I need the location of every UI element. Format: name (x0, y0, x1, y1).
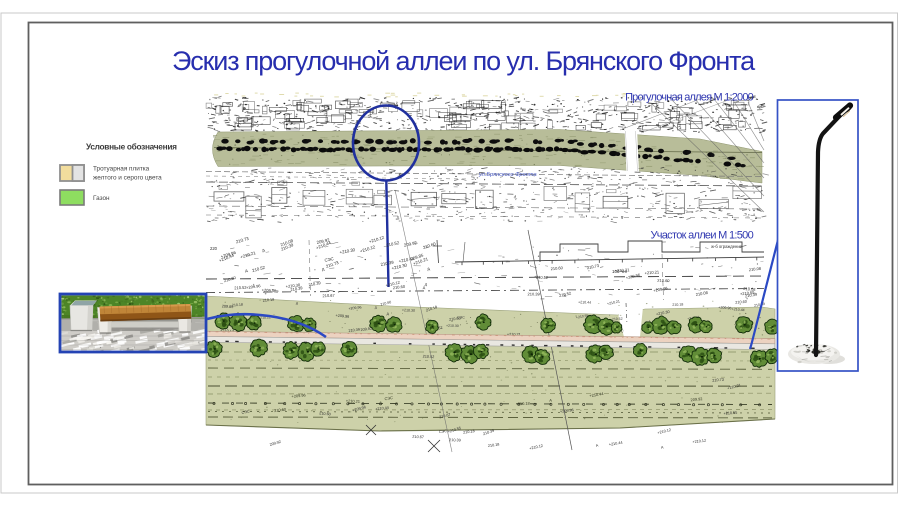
svg-text:желтого и серого цвета: желтого и серого цвета (93, 175, 162, 182)
svg-text:А: А (564, 293, 567, 298)
svg-text:210.60: 210.60 (657, 278, 670, 283)
svg-text:+210.30: +210.30 (446, 324, 459, 328)
svg-text:Условные обозначения: Условные обозначения (86, 142, 177, 152)
svg-text:Участок аллеи М 1:500: Участок аллеи М 1:500 (650, 230, 753, 242)
svg-text:+210.30: +210.30 (402, 308, 415, 313)
svg-text:+209.96: +209.96 (718, 306, 731, 311)
svg-text:210.52: 210.52 (612, 317, 623, 322)
svg-text:210.39: 210.39 (527, 292, 540, 297)
svg-text:220: 220 (210, 246, 218, 251)
svg-text:Прогулочная аллея М 1:2000: Прогулочная аллея М 1:2000 (625, 92, 754, 104)
svg-text:Газон: Газон (93, 195, 110, 202)
svg-text:210.18: 210.18 (672, 303, 683, 307)
svg-text:ул.Брянского Фронта: ул.Брянского Фронта (478, 172, 537, 178)
svg-text:210.39: 210.39 (449, 438, 461, 442)
svg-text:+210.44: +210.44 (578, 300, 591, 304)
svg-text:ж-б ограждение: ж-б ограждение (711, 244, 742, 249)
svg-text:210.67: 210.67 (412, 435, 424, 440)
svg-text:А: А (423, 285, 426, 290)
svg-text:210.52: 210.52 (234, 285, 247, 291)
svg-text:210.67: 210.67 (322, 293, 335, 298)
svg-text:+210.21: +210.21 (346, 398, 360, 404)
svg-text:210.52: 210.52 (423, 355, 435, 360)
svg-text:Тротуарная плитка: Тротуарная плитка (93, 166, 150, 173)
svg-text:209.85: 209.85 (222, 304, 234, 309)
svg-text:210.18: 210.18 (518, 401, 530, 407)
svg-text:Эскиз прогулочной аллеи по ул.: Эскиз прогулочной аллеи по ул. Брянского… (172, 46, 756, 76)
